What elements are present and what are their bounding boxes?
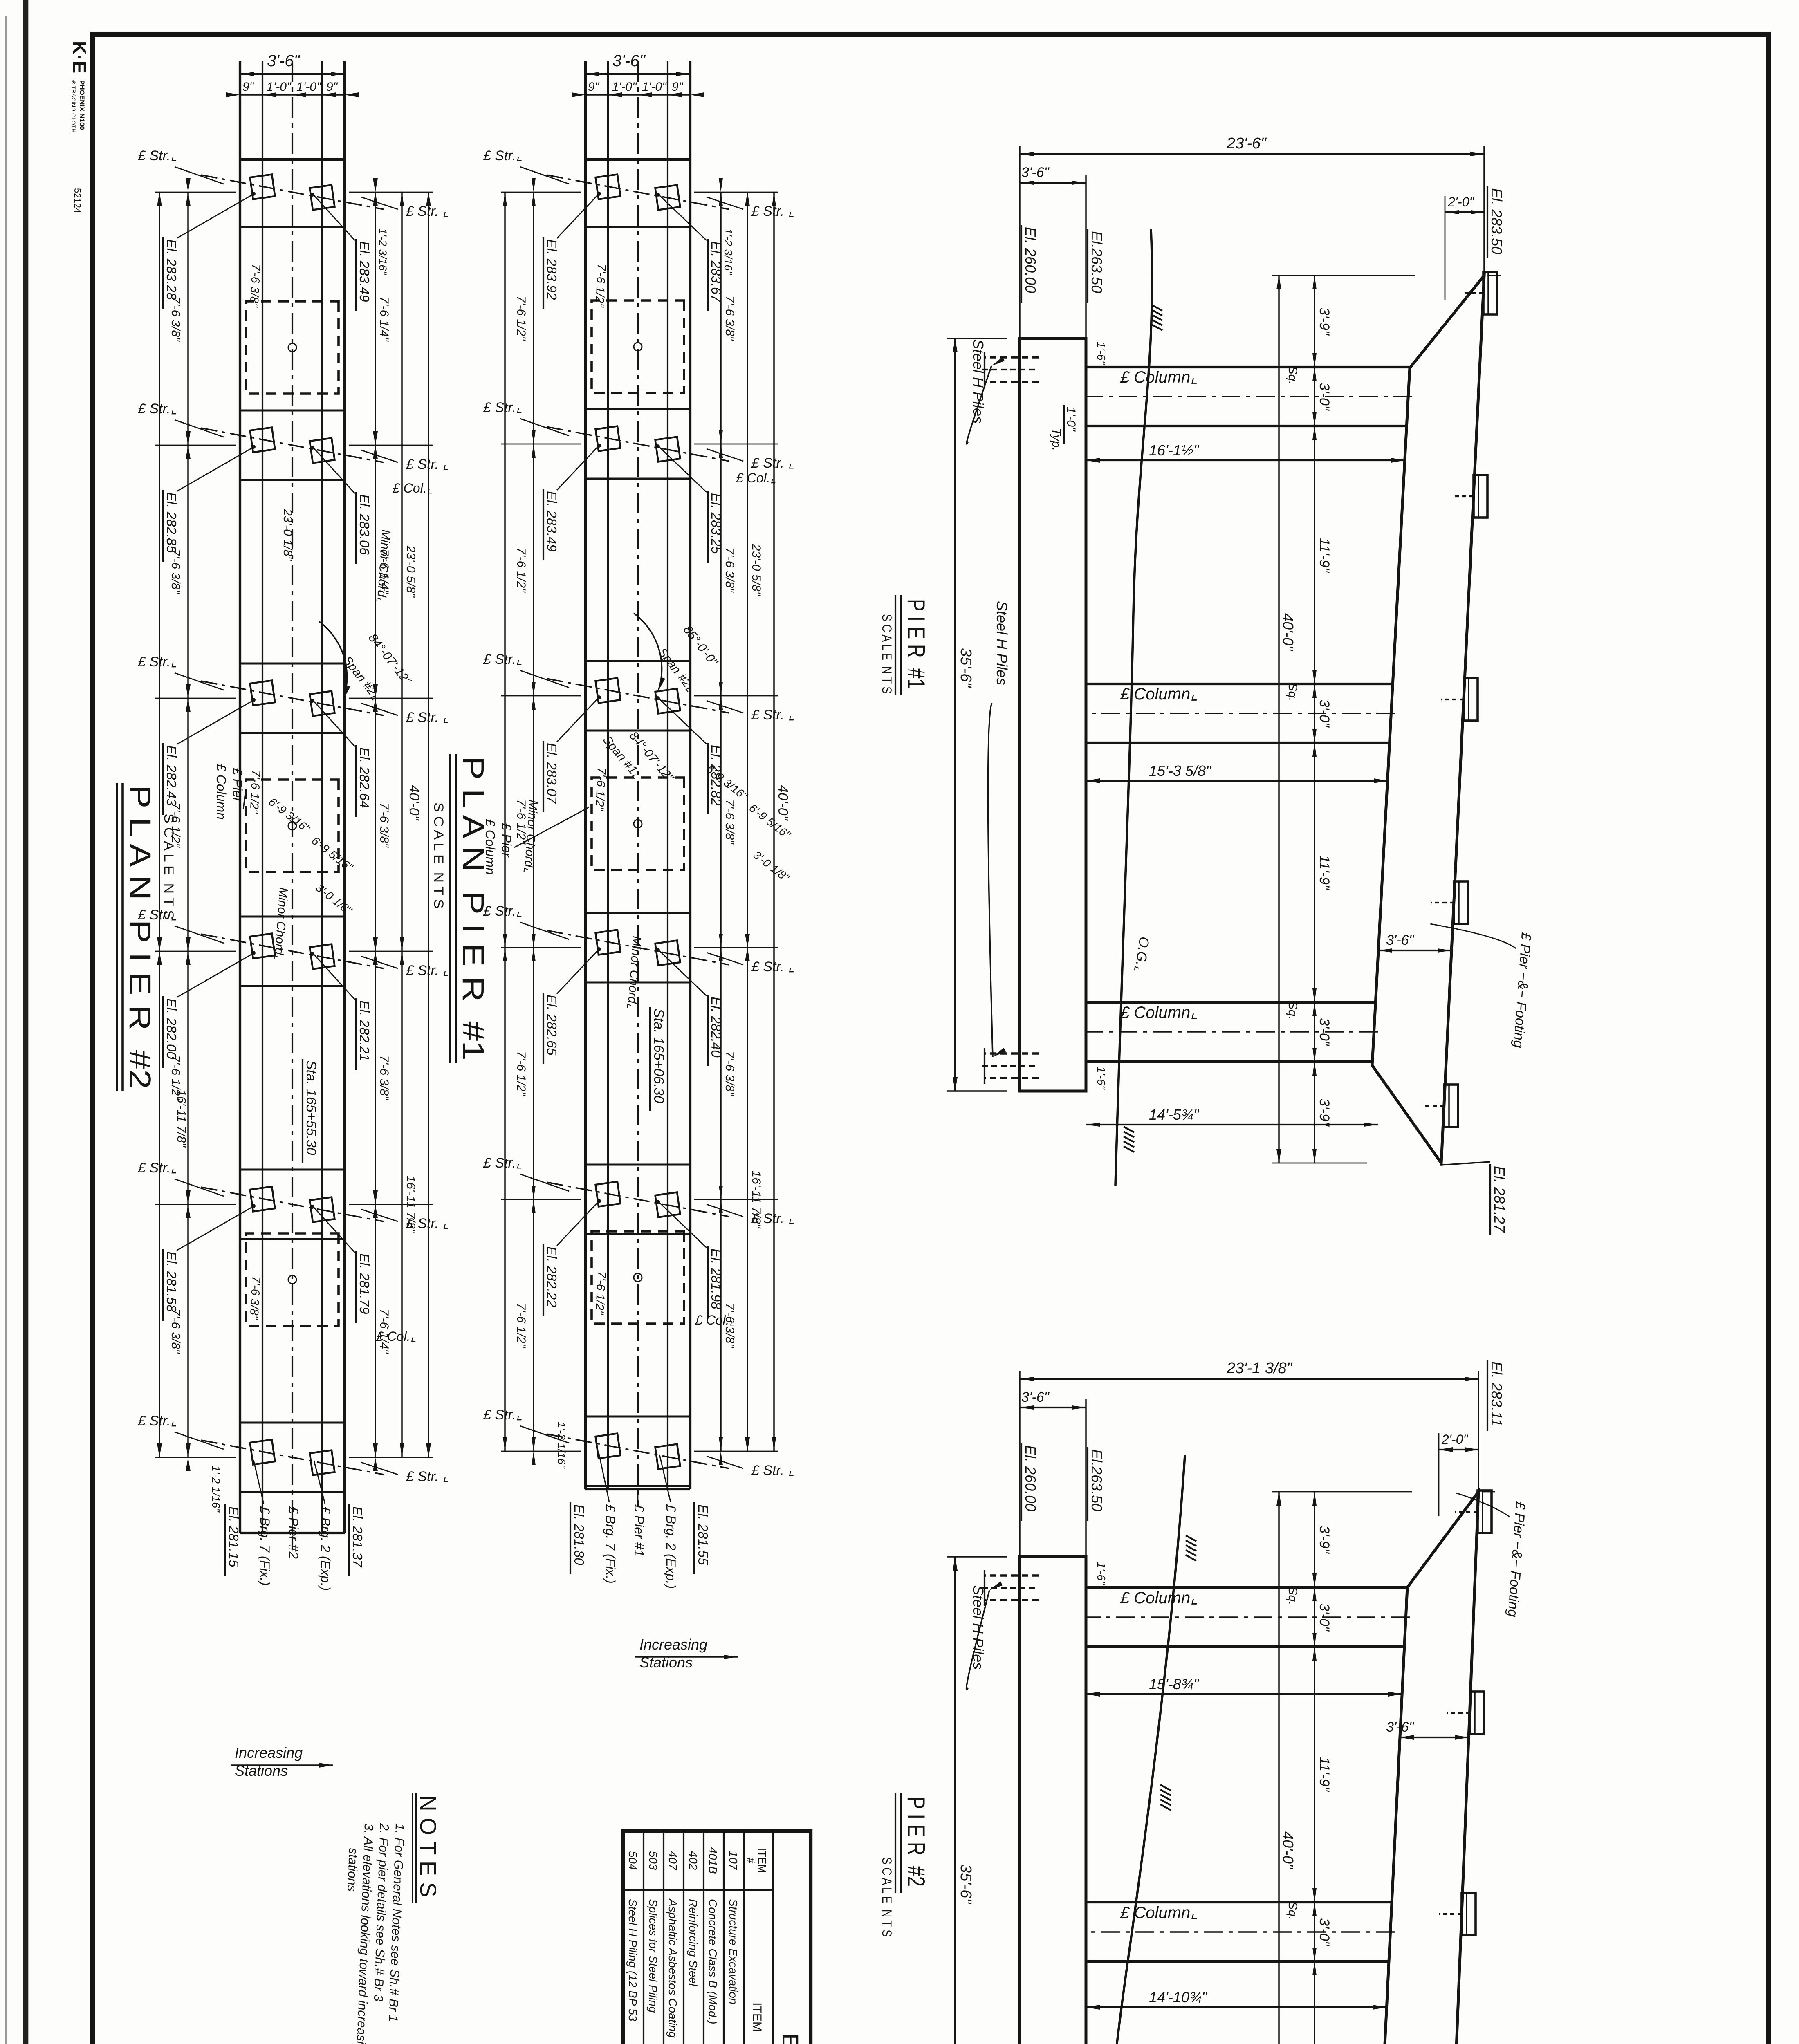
svg-text:Structure Excavation: Structure Excavation xyxy=(727,1899,740,2004)
svg-text:£ Str.⌞: £ Str.⌞ xyxy=(483,400,523,415)
svg-text:stations: stations xyxy=(345,1848,361,1892)
svg-text:£ Pier: £ Pier xyxy=(230,767,245,802)
svg-text:7'-6 3/8": 7'-6 3/8" xyxy=(247,1276,262,1320)
svg-text:El. 283.50: El. 283.50 xyxy=(1488,188,1505,254)
svg-text:Asphaltic Asbestos Coating: Asphaltic Asbestos Coating xyxy=(666,1898,679,2038)
svg-text:Sta. 165+55.30: Sta. 165+55.30 xyxy=(303,1060,319,1155)
svg-text:Increasing: Increasing xyxy=(235,1744,303,1761)
svg-text:3'-0": 3'-0" xyxy=(1317,1918,1332,1947)
svg-text:£ Str. ⌞: £ Str. ⌞ xyxy=(751,1463,794,1478)
svg-text:Steel H Piling (12 BP 53: Steel H Piling (12 BP 53 xyxy=(626,1899,639,2022)
svg-text:7'-6 3/8": 7'-6 3/8" xyxy=(169,1309,182,1354)
svg-text:9": 9" xyxy=(588,80,600,94)
svg-text:16'-11 7/8": 16'-11 7/8" xyxy=(175,1089,188,1148)
svg-text:£ Str.⌞: £ Str.⌞ xyxy=(137,1413,177,1429)
svg-text:1'-2 1/16": 1'-2 1/16" xyxy=(555,1422,568,1469)
svg-text:3'-0": 3'-0" xyxy=(1317,1603,1332,1632)
svg-text:£ Column⌞: £ Column⌞ xyxy=(1120,1589,1198,1607)
svg-text:El. 281.80: El. 281.80 xyxy=(572,1504,587,1565)
svg-text:Sq.: Sq. xyxy=(1286,1001,1299,1020)
svg-text:Concrete Class B (Mod.): Concrete Class B (Mod.) xyxy=(707,1899,719,2024)
svg-text:ITEM: ITEM xyxy=(750,2002,764,2032)
svg-text:£ Str.⌞: £ Str.⌞ xyxy=(483,148,523,164)
svg-text:El. 281.98: El. 281.98 xyxy=(709,1248,724,1309)
svg-text:£ Column⌞: £ Column⌞ xyxy=(1120,1004,1198,1022)
svg-text:35'-6": 35'-6" xyxy=(957,648,974,688)
svg-text:El. 282.43: El. 282.43 xyxy=(164,745,179,806)
svg-text:ESTIMATED QUANTITIES: ESTIMATED QUANTITIES xyxy=(778,2033,803,2044)
svg-text:1'-0": 1'-0" xyxy=(296,80,321,94)
svg-text:£ Str.⌞: £ Str.⌞ xyxy=(137,401,177,417)
svg-text:£ Brg. 2 (Exp.): £ Brg. 2 (Exp.) xyxy=(664,1504,678,1589)
svg-text:Sq.: Sq. xyxy=(1286,1587,1299,1605)
svg-text:1'-0": 1'-0" xyxy=(1064,407,1078,432)
svg-text:El. 282.85: El. 282.85 xyxy=(164,492,179,553)
svg-text:El. 282.21: El. 282.21 xyxy=(357,1000,372,1061)
svg-text:£ Pier #1: £ Pier #1 xyxy=(632,1504,646,1557)
svg-text:3'-0": 3'-0" xyxy=(1317,699,1332,728)
svg-text:401B: 401B xyxy=(707,1847,719,1874)
svg-text:7'-6 3/8": 7'-6 3/8" xyxy=(169,296,182,342)
svg-text:® TRACING CLOTH: ® TRACING CLOTH xyxy=(70,80,77,132)
svg-text:El. 283.49: El. 283.49 xyxy=(544,491,559,552)
svg-text:14'-10¾": 14'-10¾" xyxy=(1149,1989,1208,2006)
svg-text:P L A N P I E R #2: P L A N P I E R #2 xyxy=(123,785,157,1089)
svg-text:1'-6": 1'-6" xyxy=(1095,1067,1108,1090)
svg-text:3'-6": 3'-6" xyxy=(1021,1390,1050,1405)
svg-text:7'-6 3/8": 7'-6 3/8" xyxy=(723,547,736,593)
svg-text:23'-0 5/8": 23'-0 5/8" xyxy=(404,545,417,598)
svg-text:7'-6 3/8": 7'-6 3/8" xyxy=(377,802,391,848)
svg-text:£ Pier: £ Pier xyxy=(499,823,514,858)
svg-text:El. 283.28: El. 283.28 xyxy=(164,239,179,300)
svg-text:Sta. 165+06.30: Sta. 165+06.30 xyxy=(651,1009,666,1103)
svg-text:£ Str.⌞: £ Str.⌞ xyxy=(483,1407,523,1423)
svg-text:402: 402 xyxy=(687,1851,700,1870)
svg-text:40'-0": 40'-0" xyxy=(1280,613,1297,652)
svg-text:£ Str. ⌞: £ Str. ⌞ xyxy=(406,710,449,725)
svg-text:14'-5¾": 14'-5¾" xyxy=(1149,1106,1200,1123)
svg-text:3'-9": 3'-9" xyxy=(1317,1098,1332,1127)
svg-text:7'-6 1/2": 7'-6 1/2" xyxy=(514,296,528,341)
svg-text:52124: 52124 xyxy=(72,188,83,213)
svg-text:£ Str. ⌞: £ Str. ⌞ xyxy=(406,963,449,978)
svg-text:£ Str.⌞: £ Str.⌞ xyxy=(483,1155,523,1171)
svg-text:£ Str. ⌞: £ Str. ⌞ xyxy=(406,457,449,472)
svg-text:S C A L E N T S: S C A L E N T S xyxy=(431,802,446,909)
svg-text:£ Brg. 7 (Fix.): £ Brg. 7 (Fix.) xyxy=(603,1504,618,1584)
svg-text:1'-2 3/16": 1'-2 3/16" xyxy=(722,228,734,275)
svg-text:Steel H Piles: Steel H Piles xyxy=(970,339,987,424)
svg-text:£ Col.⌞: £ Col.⌞ xyxy=(376,1329,417,1344)
svg-text:El. 282.65: El. 282.65 xyxy=(544,995,559,1056)
svg-text:9": 9" xyxy=(242,80,254,94)
svg-text:Sq.: Sq. xyxy=(1286,1901,1299,1920)
svg-text:P I E R #1: P I E R #1 xyxy=(902,599,930,689)
svg-text:PHOENIX N100: PHOENIX N100 xyxy=(78,80,86,130)
svg-text:£ Str.⌞: £ Str.⌞ xyxy=(483,652,523,667)
svg-text:40'-0": 40'-0" xyxy=(775,785,791,821)
svg-text:9": 9" xyxy=(672,80,684,94)
svg-text:El. 282.40: El. 282.40 xyxy=(709,997,724,1058)
svg-text:35'-6": 35'-6" xyxy=(957,1864,974,1904)
svg-text:15'-3 5/8": 15'-3 5/8" xyxy=(1149,762,1212,779)
svg-text:107: 107 xyxy=(727,1851,740,1871)
svg-text:7'-6 3/8": 7'-6 3/8" xyxy=(377,1055,391,1100)
svg-text:£ Str. ⌞: £ Str. ⌞ xyxy=(751,1211,794,1226)
svg-text:£ Column: £ Column xyxy=(483,818,498,875)
svg-text:23'-6": 23'-6" xyxy=(1226,135,1267,152)
svg-text:El. 283.25: El. 283.25 xyxy=(709,493,724,554)
svg-text:3'-6": 3'-6" xyxy=(1386,932,1415,948)
svg-text:El. 282.64: El. 282.64 xyxy=(357,747,372,808)
svg-text:£ Str.⌞: £ Str.⌞ xyxy=(137,148,177,164)
svg-text:El. 283.11: El. 283.11 xyxy=(1488,1361,1505,1426)
svg-text:£ Str.⌞: £ Str.⌞ xyxy=(483,903,523,919)
svg-text:3'-6": 3'-6" xyxy=(1386,1719,1415,1735)
svg-text:El. 281.79: El. 281.79 xyxy=(357,1253,372,1314)
svg-text:11'-9": 11'-9" xyxy=(1317,1757,1332,1792)
svg-text:11'-9": 11'-9" xyxy=(1317,855,1332,890)
svg-text:£ Str. ⌞: £ Str. ⌞ xyxy=(406,204,449,219)
svg-text:23'-1 3/8": 23'-1 3/8" xyxy=(1226,1360,1293,1377)
svg-text:23'-0 5/8": 23'-0 5/8" xyxy=(749,544,763,596)
svg-text:El. 281.58: El. 281.58 xyxy=(164,1251,179,1312)
svg-text:£ Col.⌞: £ Col.⌞ xyxy=(736,471,776,485)
svg-text:7'-6 1/2": 7'-6 1/2" xyxy=(514,1303,528,1348)
svg-text:El.263.50: El.263.50 xyxy=(1088,1449,1105,1511)
svg-text:El.263.50: El.263.50 xyxy=(1088,231,1105,293)
svg-text:£ Brg. 7 (Fix.): £ Brg. 7 (Fix.) xyxy=(258,1506,272,1586)
svg-text:£ Str. ⌞: £ Str. ⌞ xyxy=(751,707,794,723)
svg-text:£ Str. ⌞: £ Str. ⌞ xyxy=(406,1469,449,1484)
svg-text:ITEM: ITEM xyxy=(756,1848,768,1873)
svg-text:El. 283.07: El. 283.07 xyxy=(544,743,559,804)
svg-text:El. 281.37: El. 281.37 xyxy=(350,1506,365,1568)
svg-text:15'-8¾": 15'-8¾" xyxy=(1149,1676,1200,1692)
svg-text:Reinforcing Steel: Reinforcing Steel xyxy=(687,1899,700,1986)
svg-text:El. 283.06: El. 283.06 xyxy=(357,494,372,555)
svg-text:7'-6 1/2": 7'-6 1/2" xyxy=(169,802,182,848)
svg-text:7'-6 3/8": 7'-6 3/8" xyxy=(723,1051,736,1096)
svg-text:9": 9" xyxy=(326,80,338,94)
svg-text:3'-0": 3'-0" xyxy=(1317,1018,1332,1047)
svg-text:2'-0": 2'-0" xyxy=(1447,195,1474,209)
svg-text:£ Str. ⌞: £ Str. ⌞ xyxy=(751,455,794,471)
svg-text:1'-2 3/16": 1'-2 3/16" xyxy=(377,228,389,275)
svg-text:K·E: K·E xyxy=(69,41,90,73)
svg-text:16'-1½": 16'-1½" xyxy=(1149,442,1200,459)
svg-text:7'-6 1/2": 7'-6 1/2" xyxy=(514,547,528,593)
svg-text:1'-2 1/16": 1'-2 1/16" xyxy=(210,1466,222,1513)
svg-text:El. 282.22: El. 282.22 xyxy=(544,1246,559,1307)
svg-text:S C A L E N T S: S C A L E N T S xyxy=(879,1857,894,1937)
svg-text:Steel H Piles: Steel H Piles xyxy=(994,601,1010,685)
svg-text:Splices for Steel Piling: Splices for Steel Piling xyxy=(647,1899,659,2013)
svg-text:7'-6 3/8": 7'-6 3/8" xyxy=(169,549,182,594)
svg-text:£ Str. ⌞: £ Str. ⌞ xyxy=(751,959,794,975)
svg-text:7'-6 1/2": 7'-6 1/2" xyxy=(592,1271,608,1316)
svg-text:3'-6": 3'-6" xyxy=(1021,165,1050,180)
svg-text:£ Str. ⌞: £ Str. ⌞ xyxy=(406,1216,449,1231)
svg-text:7'-6 3/8": 7'-6 3/8" xyxy=(723,296,736,341)
svg-text:El. 283.67: El. 283.67 xyxy=(709,241,724,303)
svg-text:7'-6 3/8": 7'-6 3/8" xyxy=(723,799,736,845)
svg-text:£ Str.⌞: £ Str.⌞ xyxy=(137,907,177,923)
svg-text:£ Col.⌞: £ Col.⌞ xyxy=(392,481,433,495)
svg-text:23'-0 1/8": 23'-0 1/8" xyxy=(281,509,294,561)
svg-text:£ Str. ⌞: £ Str. ⌞ xyxy=(751,204,794,219)
svg-text:7'-6 3/8": 7'-6 3/8" xyxy=(247,264,262,308)
svg-text:£ Column: £ Column xyxy=(214,763,229,820)
svg-text:3'-0": 3'-0" xyxy=(1317,383,1332,411)
svg-text:2'-0": 2'-0" xyxy=(1441,1432,1468,1447)
svg-text:504: 504 xyxy=(626,1851,639,1870)
svg-text:Increasing: Increasing xyxy=(639,1636,707,1653)
svg-text:7'-6 1/2": 7'-6 1/2" xyxy=(247,770,262,814)
svg-text:40'-0": 40'-0" xyxy=(406,785,422,821)
svg-text:£ Str.⌞: £ Str.⌞ xyxy=(137,1160,177,1176)
svg-text:£ Col.⌞: £ Col.⌞ xyxy=(695,1313,736,1327)
svg-text:£ Pier #2: £ Pier #2 xyxy=(286,1506,301,1559)
svg-text:El. 281.27: El. 281.27 xyxy=(1491,1166,1508,1233)
svg-text:1'-0": 1'-0" xyxy=(612,80,637,94)
svg-text:3'-9": 3'-9" xyxy=(1317,1526,1332,1554)
svg-text:El. 283.92: El. 283.92 xyxy=(544,239,559,300)
svg-text:Sq.: Sq. xyxy=(1286,683,1299,701)
svg-text:3'-6": 3'-6" xyxy=(267,52,300,70)
svg-text:#: # xyxy=(745,1858,757,1864)
svg-text:503: 503 xyxy=(647,1851,659,1870)
svg-text:7'-6 1/2": 7'-6 1/2" xyxy=(514,1051,528,1096)
svg-text:El. 282.00: El. 282.00 xyxy=(164,998,179,1059)
svg-text:P I E R #2: P I E R #2 xyxy=(902,1797,930,1887)
svg-text:7'-6 1/2": 7'-6 1/2" xyxy=(592,767,608,812)
svg-text:Sq.: Sq. xyxy=(1286,366,1299,384)
svg-text:7'-6 1/4": 7'-6 1/4" xyxy=(377,296,391,342)
svg-text:El. 281.55: El. 281.55 xyxy=(695,1504,711,1565)
svg-text:El. 281.15: El. 281.15 xyxy=(226,1506,241,1567)
svg-text:El. 260.00: El. 260.00 xyxy=(1022,227,1039,293)
svg-text:N O T E S: N O T E S xyxy=(415,1795,441,1897)
svg-text:£ Brg. 2 (Exp.): £ Brg. 2 (Exp.) xyxy=(318,1506,333,1591)
svg-text:11'-9": 11'-9" xyxy=(1317,538,1332,573)
svg-text:3'-6": 3'-6" xyxy=(612,52,646,70)
svg-text:1'-6": 1'-6" xyxy=(1095,342,1108,365)
svg-text:1'-6": 1'-6" xyxy=(1095,1562,1108,1585)
svg-text:£ Str.⌞: £ Str.⌞ xyxy=(137,654,177,670)
svg-text:Typ.: Typ. xyxy=(1050,428,1063,451)
svg-text:£ Column⌞: £ Column⌞ xyxy=(1120,1904,1198,1922)
svg-text:1'-0": 1'-0" xyxy=(267,80,292,94)
svg-text:S C A L E N T S: S C A L E N T S xyxy=(879,614,894,694)
svg-text:El. 283.49: El. 283.49 xyxy=(357,241,372,302)
svg-text:1'-0": 1'-0" xyxy=(642,80,667,94)
svg-text:40'-0": 40'-0" xyxy=(1280,1831,1297,1870)
svg-text:£ Column⌞: £ Column⌞ xyxy=(1120,368,1198,386)
svg-text:El. 260.00: El. 260.00 xyxy=(1022,1445,1039,1511)
svg-text:3'-9": 3'-9" xyxy=(1317,307,1332,336)
svg-text:7'-6 1/2": 7'-6 1/2" xyxy=(592,264,608,308)
svg-text:407: 407 xyxy=(666,1851,679,1871)
